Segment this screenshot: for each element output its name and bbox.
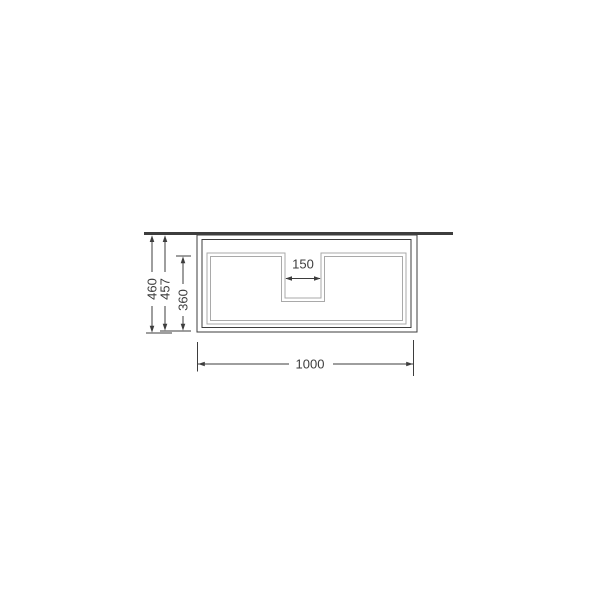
dim-cutout-width-label: 150 <box>292 257 314 272</box>
arrowhead-up-icon <box>150 235 155 242</box>
arrowhead-up-icon <box>181 256 186 263</box>
arrowhead-down-icon <box>163 324 168 331</box>
arrowhead-left-icon <box>285 276 292 281</box>
arrowhead-down-icon <box>181 324 186 331</box>
arrowhead-left-icon <box>198 362 205 367</box>
dim-carcass-height: 457 <box>158 235 173 330</box>
dim-overall-width: 1000 <box>198 340 414 376</box>
carcass-outer-outline <box>197 235 417 332</box>
dim-cutout-width: 150 <box>285 257 320 281</box>
dim-overall-width-label: 1000 <box>296 357 325 372</box>
cabinet-carcass <box>197 235 417 332</box>
arrowhead-right-icon <box>314 276 321 281</box>
dim-drawer-front-height-label: 360 <box>176 289 191 311</box>
dim-carcass-height-label: 457 <box>158 278 173 300</box>
technical-drawing-page: 460 457 360 150 <box>0 0 600 600</box>
vanity-front-elevation-drawing: 460 457 360 150 <box>0 0 600 600</box>
dim-drawer-front-height: 360 <box>176 256 192 331</box>
arrowhead-down-icon <box>150 326 155 333</box>
arrowhead-right-icon <box>406 362 413 367</box>
arrowhead-up-icon <box>163 235 168 242</box>
bottom-extension-lines <box>146 331 191 333</box>
